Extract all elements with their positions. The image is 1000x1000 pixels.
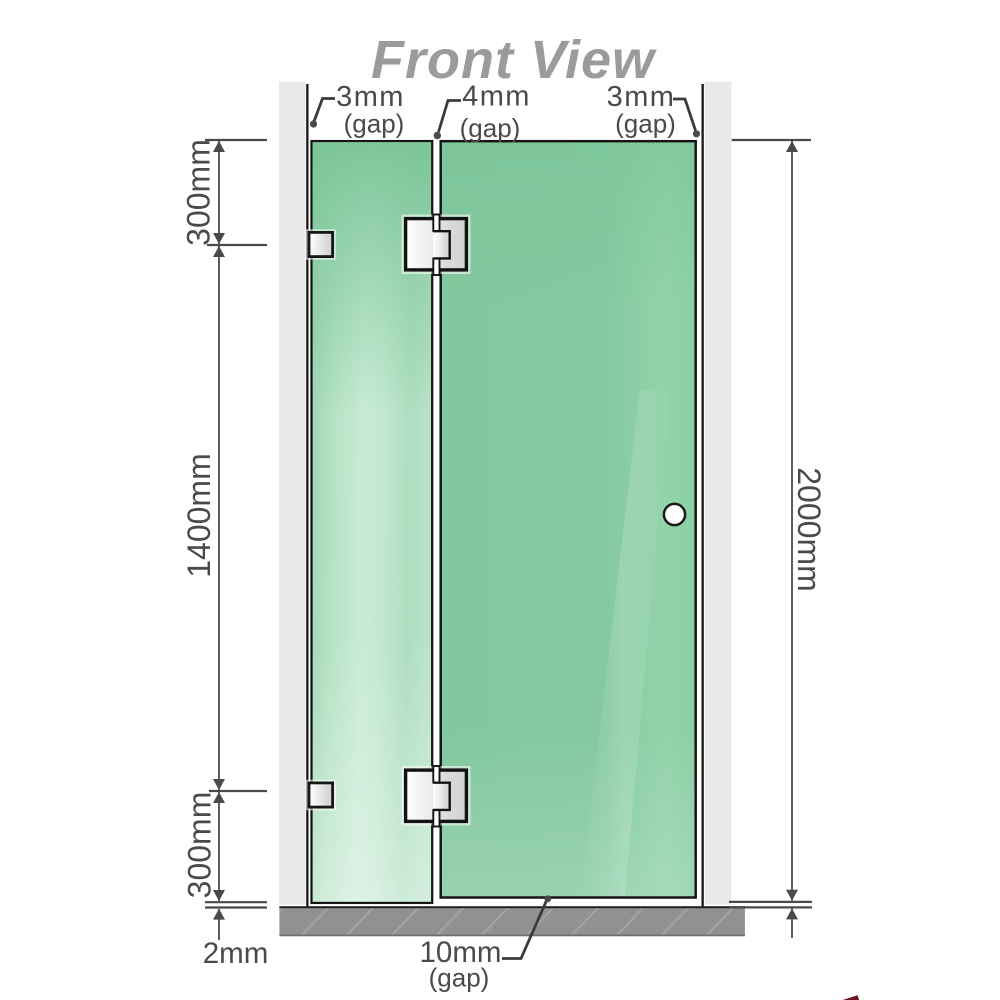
svg-text:4mm: 4mm	[462, 81, 531, 113]
svg-text:300mm: 300mm	[181, 139, 217, 246]
svg-text:(gap): (gap)	[615, 109, 676, 139]
svg-text:(gap): (gap)	[344, 109, 405, 139]
svg-text:2000mm: 2000mm	[791, 467, 827, 592]
svg-text:2mm: 2mm	[203, 937, 269, 970]
svg-text:(gap): (gap)	[460, 113, 521, 143]
svg-text:1400mm: 1400mm	[181, 453, 217, 578]
svg-text:(gap): (gap)	[429, 963, 490, 993]
svg-text:300mm: 300mm	[182, 792, 218, 899]
